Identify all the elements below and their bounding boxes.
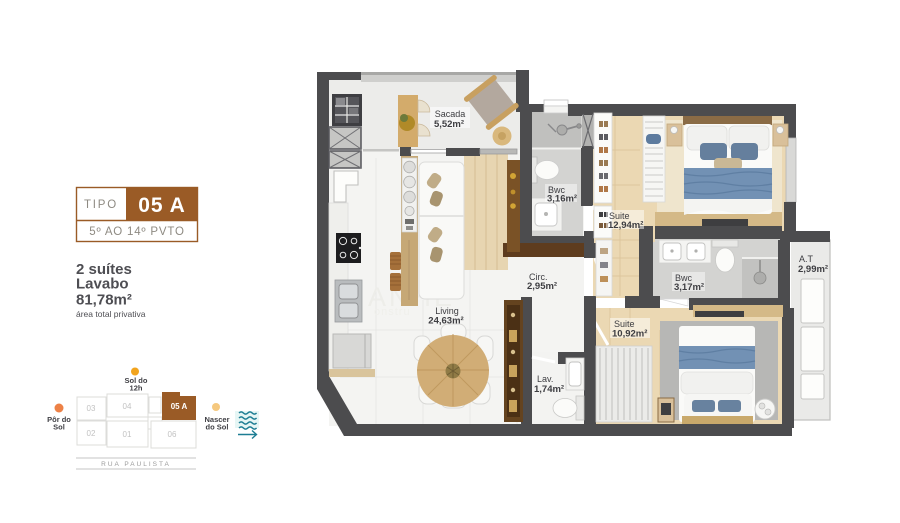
svg-text:01: 01 <box>123 430 132 439</box>
svg-text:2,95m²: 2,95m² <box>527 281 557 292</box>
svg-text:3,16m²: 3,16m² <box>547 194 577 205</box>
svg-text:12,94m²: 12,94m² <box>608 220 643 231</box>
svg-text:5º AO 14º PVTO: 5º AO 14º PVTO <box>89 226 184 238</box>
svg-text:06: 06 <box>168 430 177 439</box>
svg-text:3,17m²: 3,17m² <box>674 282 704 293</box>
svg-text:Lavabo: Lavabo <box>76 276 129 293</box>
svg-text:2,99m²: 2,99m² <box>798 264 828 275</box>
svg-text:5,52m²: 5,52m² <box>434 119 464 130</box>
svg-text:Suite: Suite <box>614 319 635 329</box>
svg-text:Lav.: Lav. <box>537 374 553 384</box>
svg-text:RUA PAULISTA: RUA PAULISTA <box>101 461 171 468</box>
svg-text:1,74m²: 1,74m² <box>534 384 564 395</box>
svg-text:12h: 12h <box>130 384 143 393</box>
svg-text:Sacada: Sacada <box>435 109 466 119</box>
svg-text:04: 04 <box>123 402 132 411</box>
svg-text:05 A: 05 A <box>138 194 186 217</box>
svg-text:do Sol: do Sol <box>206 423 229 432</box>
svg-text:02: 02 <box>87 429 96 438</box>
svg-text:onstru: onstru <box>374 306 411 318</box>
svg-text:10,92m²: 10,92m² <box>612 329 647 340</box>
svg-text:Sol: Sol <box>53 423 65 432</box>
svg-text:24,63m²: 24,63m² <box>428 316 463 327</box>
svg-text:área total privativa: área total privativa <box>76 309 146 319</box>
svg-text:Living: Living <box>435 306 459 316</box>
svg-text:03: 03 <box>87 404 96 413</box>
svg-text:TIPO: TIPO <box>84 199 118 211</box>
svg-text:A.T: A.T <box>799 254 814 264</box>
svg-text:81,78m²: 81,78m² <box>76 292 132 309</box>
svg-text:05 A: 05 A <box>171 402 188 411</box>
